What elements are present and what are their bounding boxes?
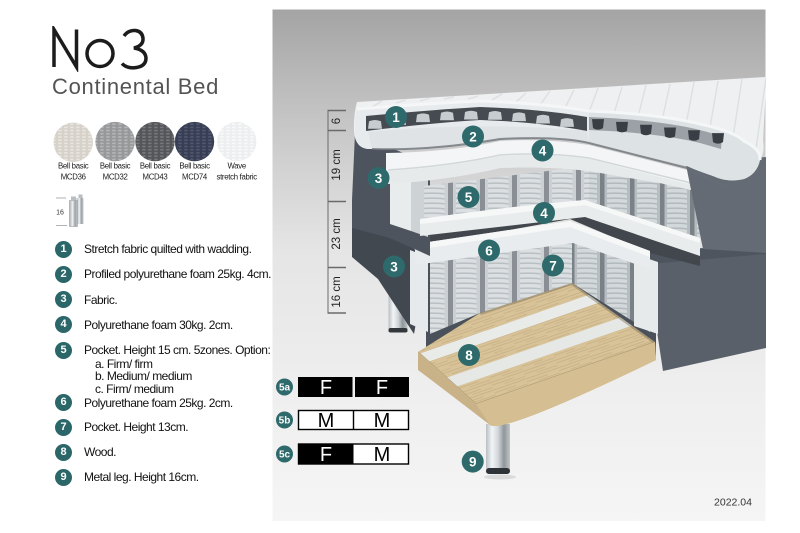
svg-text:Bell basic: Bell basic bbox=[179, 162, 210, 171]
svg-text:8: 8 bbox=[465, 348, 473, 363]
svg-text:M: M bbox=[374, 410, 391, 432]
svg-text:7: 7 bbox=[549, 259, 557, 274]
svg-text:Bell basic: Bell basic bbox=[58, 162, 89, 171]
svg-text:2: 2 bbox=[469, 130, 477, 145]
svg-text:6: 6 bbox=[485, 244, 493, 259]
svg-text:MCD43: MCD43 bbox=[143, 173, 168, 182]
svg-text:1: 1 bbox=[392, 110, 400, 125]
svg-text:23 cm: 23 cm bbox=[331, 218, 343, 249]
svg-text:5: 5 bbox=[465, 190, 473, 205]
svg-text:19 cm: 19 cm bbox=[331, 149, 343, 180]
svg-text:16 cm: 16 cm bbox=[331, 276, 343, 307]
svg-text:3: 3 bbox=[375, 171, 383, 186]
svg-text:3: 3 bbox=[390, 260, 398, 275]
svg-text:2022.04: 2022.04 bbox=[714, 497, 752, 509]
svg-text:5a: 5a bbox=[279, 383, 291, 394]
svg-text:Wave: Wave bbox=[227, 162, 245, 171]
svg-text:4: 4 bbox=[539, 144, 547, 159]
svg-text:Bell basic: Bell basic bbox=[100, 162, 131, 171]
svg-text:MCD36: MCD36 bbox=[61, 173, 86, 182]
svg-text:MCD74: MCD74 bbox=[182, 173, 208, 182]
svg-text:9: 9 bbox=[469, 455, 477, 470]
svg-text:16: 16 bbox=[56, 210, 64, 217]
svg-text:Bell basic: Bell basic bbox=[140, 162, 171, 171]
svg-text:F: F bbox=[320, 377, 332, 399]
svg-text:MCD32: MCD32 bbox=[103, 173, 128, 182]
svg-text:M: M bbox=[318, 410, 335, 432]
svg-text:5b: 5b bbox=[279, 416, 291, 427]
svg-text:stretch fabric: stretch fabric bbox=[216, 173, 257, 182]
svg-text:F: F bbox=[320, 444, 332, 466]
svg-text:F: F bbox=[376, 377, 388, 399]
svg-text:5c: 5c bbox=[279, 450, 291, 461]
svg-text:M: M bbox=[374, 444, 391, 466]
svg-text:4: 4 bbox=[540, 206, 548, 221]
svg-text:6: 6 bbox=[331, 118, 343, 124]
